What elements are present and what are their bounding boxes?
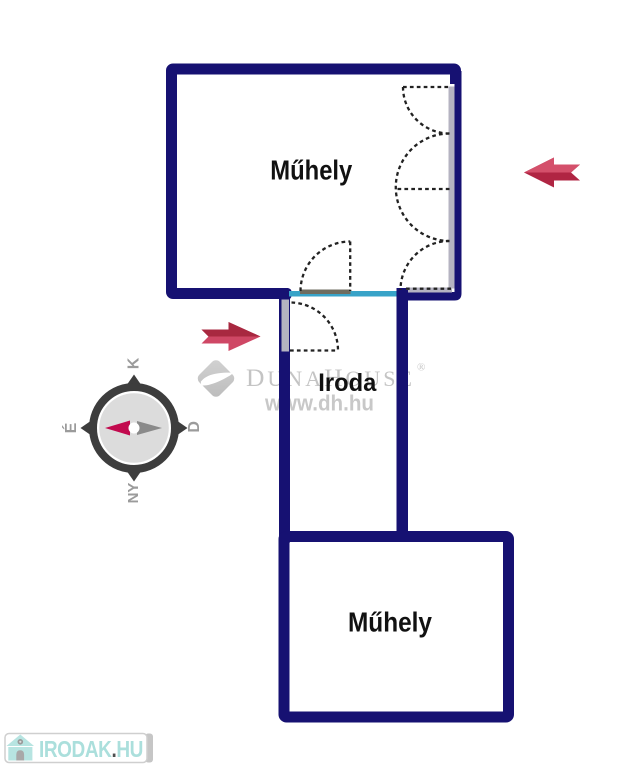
svg-text:IRODAK.HU: IRODAK.HU <box>39 736 143 762</box>
svg-text:D: D <box>186 421 203 433</box>
svg-text:®: ® <box>417 362 425 374</box>
svg-text:Iroda: Iroda <box>318 369 377 397</box>
svg-text:É: É <box>61 422 80 433</box>
svg-text:K: K <box>126 357 143 369</box>
svg-text:Műhely: Műhely <box>270 155 352 186</box>
svg-text:Műhely: Műhely <box>348 607 432 638</box>
svg-text:NY: NY <box>125 483 142 504</box>
